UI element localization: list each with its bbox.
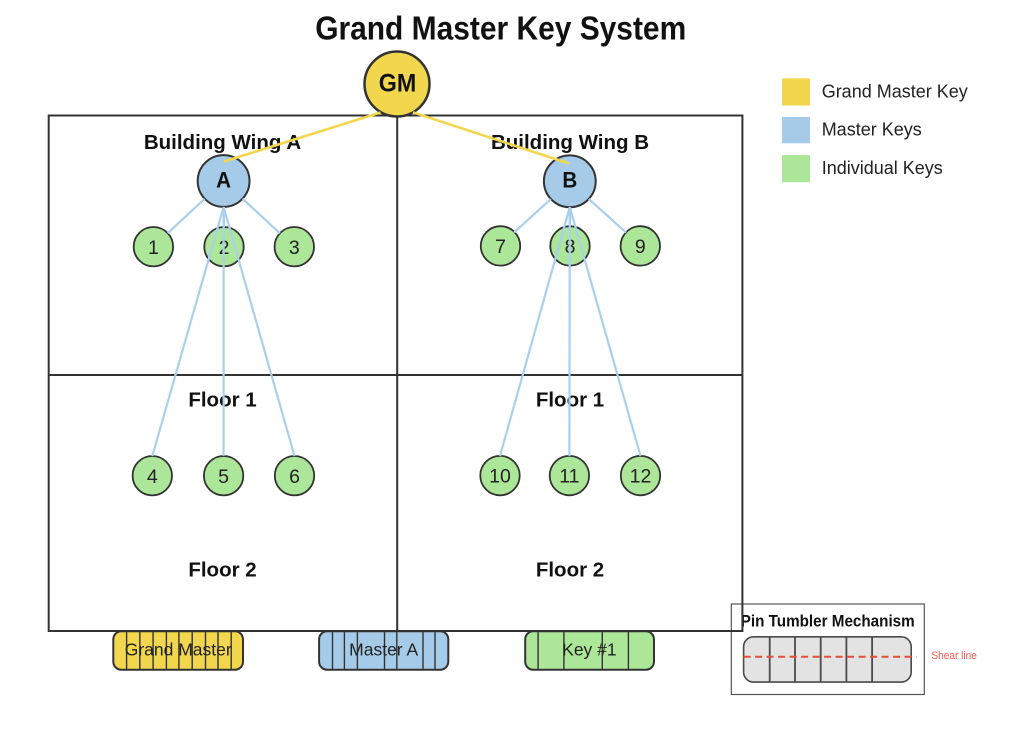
svg-text:6: 6 (289, 466, 300, 488)
svg-text:Grand Master Key System: Grand Master Key System (315, 9, 686, 46)
svg-text:Floor 2: Floor 2 (536, 558, 604, 581)
svg-text:12: 12 (630, 466, 652, 488)
svg-text:11: 11 (559, 466, 579, 488)
svg-text:Pin Tumbler Mechanism: Pin Tumbler Mechanism (741, 611, 915, 630)
svg-text:Individual Keys: Individual Keys (822, 158, 943, 178)
svg-text:Shear line: Shear line (931, 650, 977, 662)
svg-text:Master Keys: Master Keys (822, 120, 922, 140)
svg-text:Master A: Master A (349, 639, 418, 659)
svg-text:Building Wing A: Building Wing A (144, 131, 302, 154)
svg-text:Key #1: Key #1 (562, 639, 616, 659)
svg-text:3: 3 (289, 237, 300, 259)
svg-text:Grand Master: Grand Master (125, 639, 232, 659)
svg-text:9: 9 (635, 236, 646, 258)
svg-text:Grand Master Key: Grand Master Key (822, 81, 968, 101)
svg-text:10: 10 (489, 466, 511, 488)
svg-text:4: 4 (147, 466, 158, 488)
svg-text:Floor 2: Floor 2 (188, 558, 256, 581)
svg-text:1: 1 (148, 237, 159, 259)
svg-text:B: B (562, 168, 577, 193)
svg-text:5: 5 (218, 466, 229, 488)
svg-text:Building Wing B: Building Wing B (491, 131, 649, 154)
svg-text:7: 7 (495, 236, 506, 258)
svg-text:A: A (216, 167, 231, 192)
svg-text:GM: GM (379, 70, 417, 98)
